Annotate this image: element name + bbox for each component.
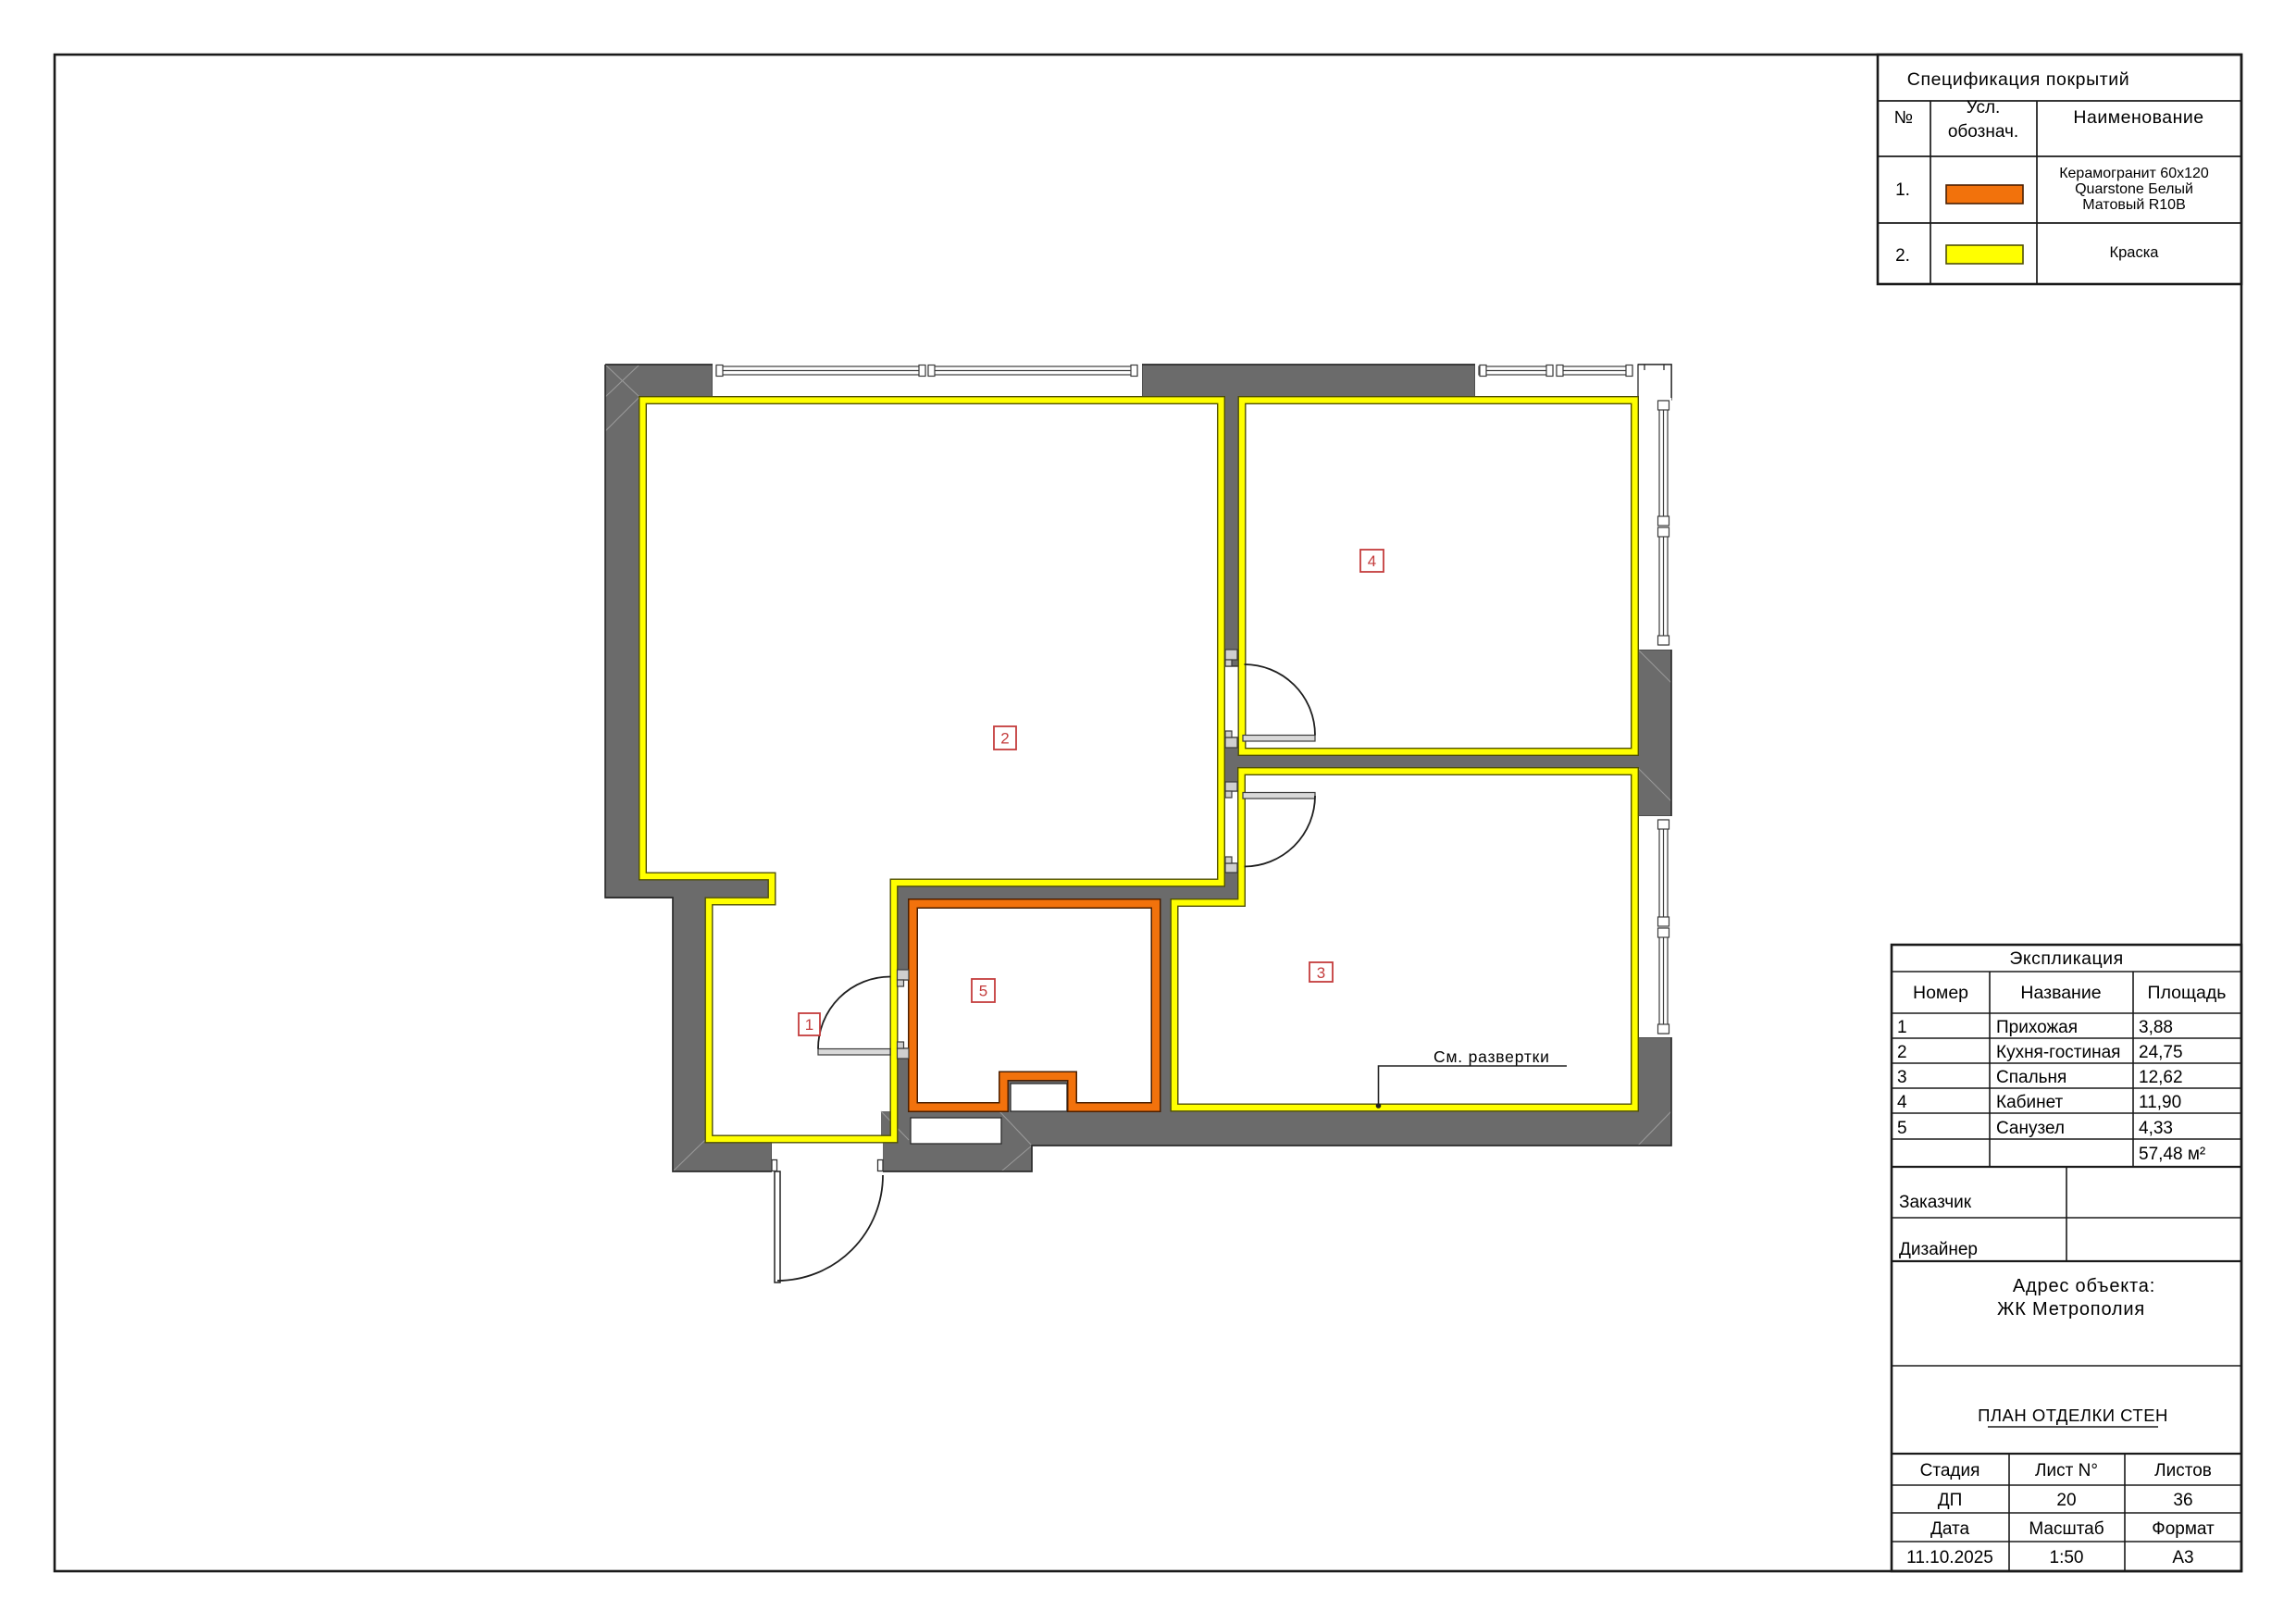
svg-text:11.10.2025: 11.10.2025: [1906, 1548, 1993, 1567]
svg-text:Листов: Листов: [2154, 1461, 2212, 1481]
svg-text:Экспликация: Экспликация: [2009, 948, 2123, 969]
svg-text:57,48 м²: 57,48 м²: [2139, 1145, 2205, 1164]
svg-text:Краска: Краска: [2110, 244, 2160, 261]
svg-text:ПЛАН ОТДЕЛКИ СТЕН: ПЛАН ОТДЕЛКИ СТЕН: [1978, 1406, 2168, 1425]
svg-text:2: 2: [1000, 730, 1009, 748]
svg-text:Санузел: Санузел: [1996, 1119, 2065, 1138]
svg-text:Название: Название: [2020, 983, 2101, 1003]
svg-text:3: 3: [1317, 964, 1325, 982]
svg-text:1: 1: [805, 1016, 813, 1034]
svg-text:обознач.: обознач.: [1948, 122, 2018, 142]
svg-text:Quarstone Белый: Quarstone Белый: [2075, 181, 2193, 197]
svg-text:Кабинет: Кабинет: [1996, 1093, 2064, 1112]
svg-text:Дата: Дата: [1930, 1519, 1970, 1539]
svg-text:1:50: 1:50: [2050, 1548, 2084, 1567]
svg-text:3,88: 3,88: [2139, 1018, 2173, 1037]
svg-text:Адрес объекта:: Адрес объекта:: [2013, 1276, 2155, 1296]
svg-text:4: 4: [1897, 1093, 1907, 1112]
svg-text:36: 36: [2173, 1491, 2192, 1510]
svg-text:Формат: Формат: [2152, 1519, 2215, 1539]
svg-text:2.: 2.: [1895, 246, 1910, 266]
svg-text:Площадь: Площадь: [2148, 983, 2227, 1003]
svg-text:ДП: ДП: [1938, 1491, 1963, 1510]
svg-text:4: 4: [1368, 552, 1376, 570]
svg-text:12,62: 12,62: [2139, 1068, 2183, 1087]
svg-text:ЖК Метрополия: ЖК Метрополия: [1997, 1299, 2145, 1319]
svg-text:1.: 1.: [1895, 180, 1910, 200]
svg-text:Дизайнер: Дизайнер: [1899, 1240, 1978, 1259]
svg-text:А3: А3: [2172, 1548, 2193, 1567]
svg-text:3: 3: [1897, 1068, 1907, 1087]
svg-text:Кухня-гостиная: Кухня-гостиная: [1996, 1043, 2120, 1062]
svg-text:Усл.: Усл.: [1967, 98, 2001, 118]
svg-text:№: №: [1894, 108, 1913, 128]
svg-text:24,75: 24,75: [2139, 1043, 2183, 1062]
svg-text:Матовый R10B: Матовый R10B: [2082, 197, 2186, 213]
svg-text:Номер: Номер: [1913, 983, 1968, 1003]
svg-text:20: 20: [2056, 1491, 2076, 1510]
svg-text:Прихожая: Прихожая: [1996, 1018, 2078, 1037]
svg-text:Масштаб: Масштаб: [2029, 1519, 2104, 1539]
svg-text:5: 5: [979, 983, 987, 1000]
svg-text:См. развертки: См. развертки: [1433, 1047, 1550, 1066]
svg-text:1: 1: [1897, 1018, 1907, 1037]
svg-text:Заказчик: Заказчик: [1899, 1193, 1972, 1212]
svg-text:Керамогранит 60х120: Керамогранит 60х120: [2059, 166, 2209, 181]
svg-text:11,90: 11,90: [2139, 1093, 2181, 1112]
svg-text:Наименование: Наименование: [2073, 107, 2203, 128]
svg-text:Лист N°: Лист N°: [2035, 1461, 2098, 1481]
svg-text:Спальня: Спальня: [1996, 1068, 2066, 1087]
svg-text:4,33: 4,33: [2139, 1119, 2173, 1138]
svg-text:Стадия: Стадия: [1920, 1461, 1980, 1481]
svg-text:Спецификация покрытий: Спецификация покрытий: [1907, 69, 2129, 90]
svg-text:2: 2: [1897, 1043, 1907, 1062]
svg-text:5: 5: [1897, 1119, 1907, 1138]
